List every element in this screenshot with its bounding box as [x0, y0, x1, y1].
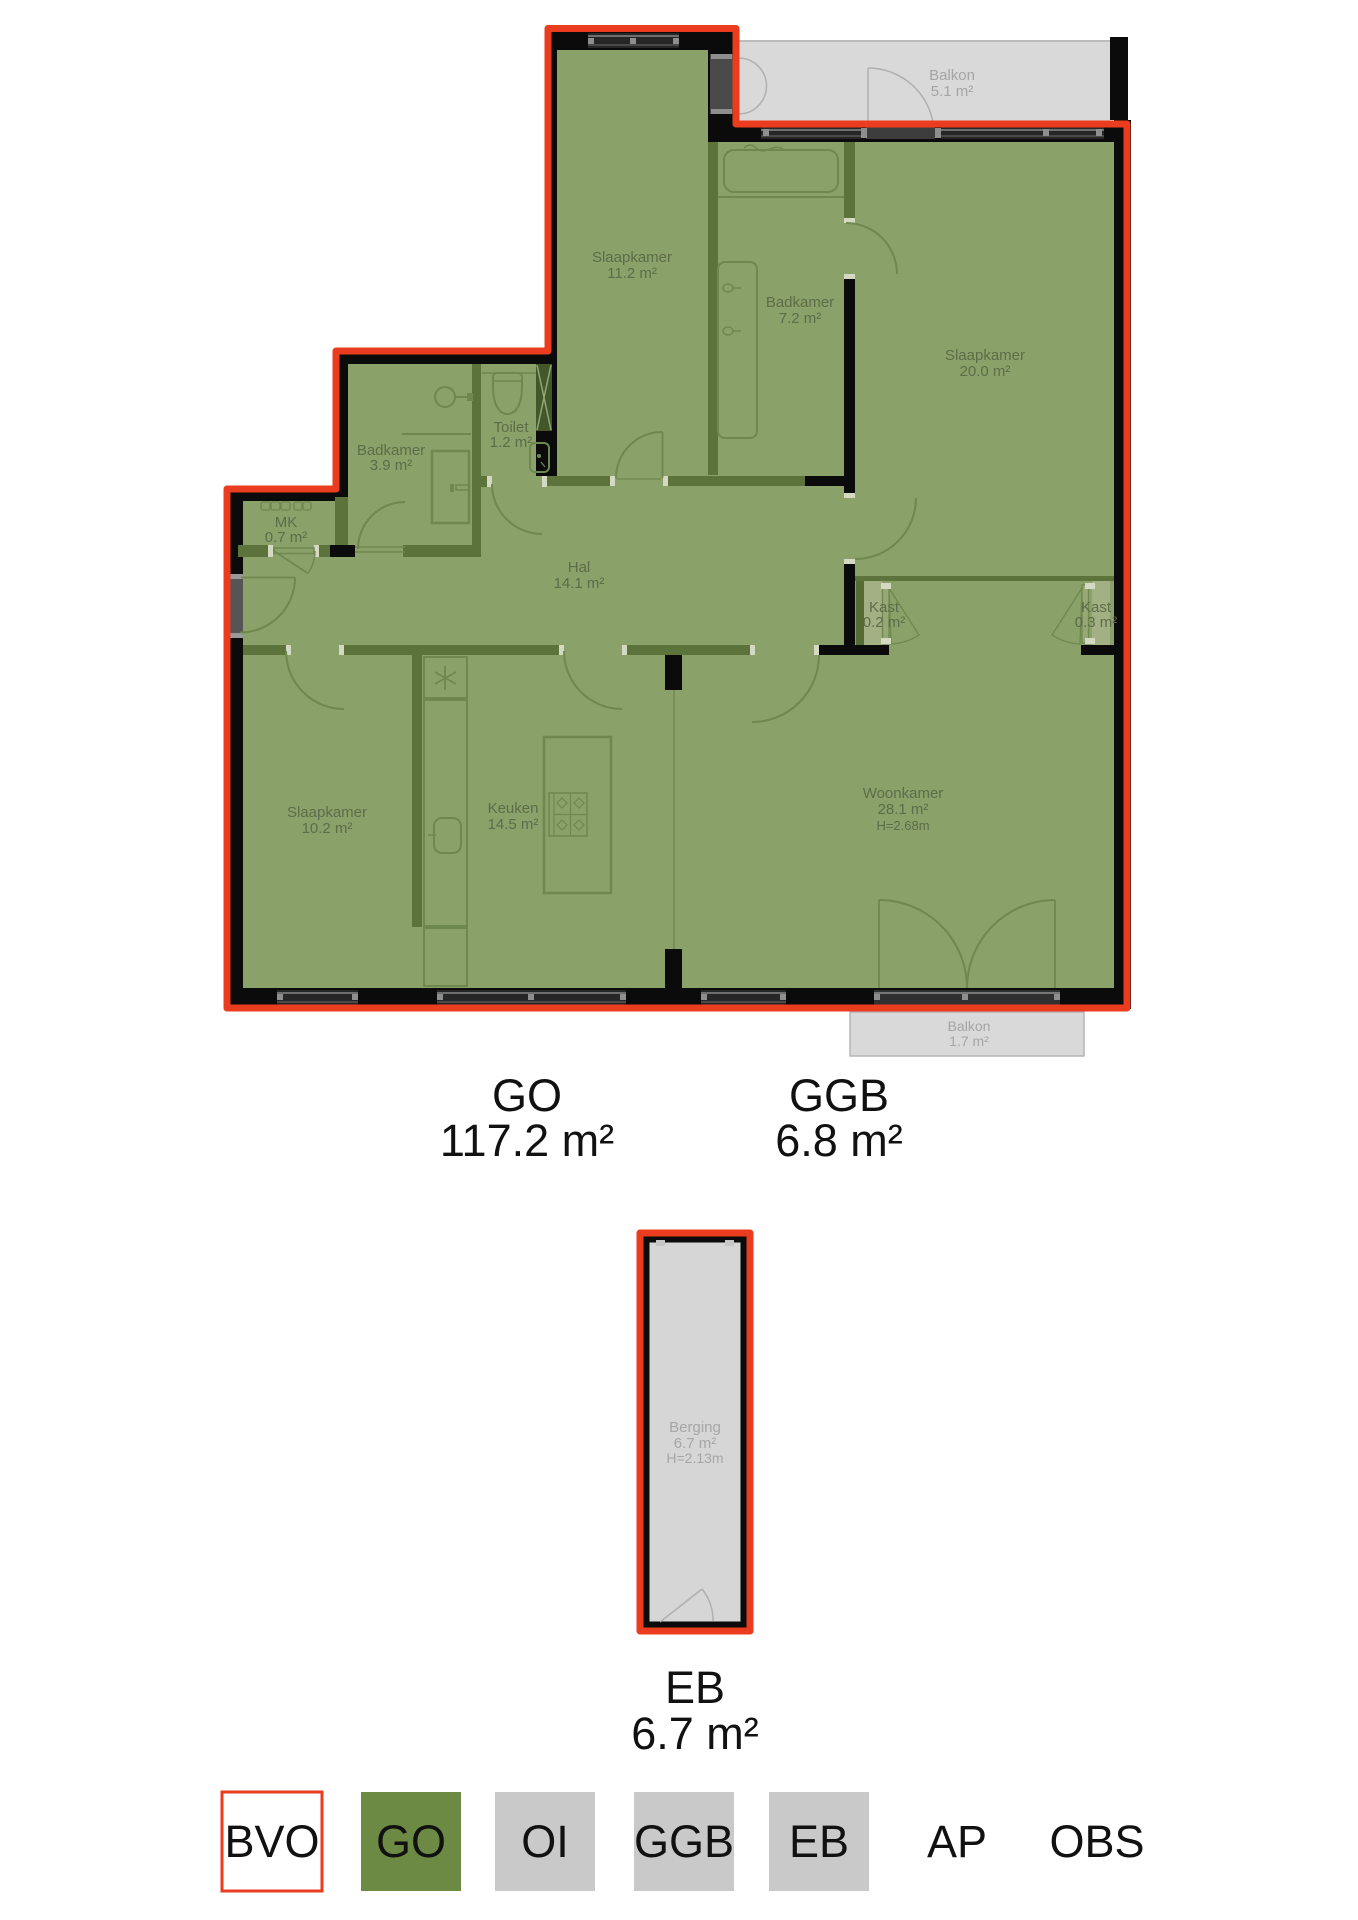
svg-text:GO: GO — [492, 1070, 562, 1121]
svg-text:0.7 m²: 0.7 m² — [265, 529, 308, 546]
svg-text:1.7 m²: 1.7 m² — [949, 1033, 989, 1049]
svg-text:10.2 m²: 10.2 m² — [302, 820, 353, 837]
svg-text:28.1 m²: 28.1 m² — [878, 801, 929, 818]
svg-text:11.2 m²: 11.2 m² — [607, 265, 657, 282]
svg-text:OBS: OBS — [1049, 1816, 1144, 1867]
svg-text:Hal: Hal — [568, 559, 591, 576]
svg-text:EB: EB — [789, 1816, 849, 1867]
svg-text:Woonkamer: Woonkamer — [863, 785, 944, 802]
svg-text:6.7 m²: 6.7 m² — [631, 1708, 759, 1759]
svg-text:AP: AP — [927, 1816, 987, 1867]
svg-text:Balkon: Balkon — [929, 67, 975, 84]
svg-text:5.1 m²: 5.1 m² — [931, 83, 974, 100]
svg-text:7.2 m²: 7.2 m² — [779, 310, 822, 327]
svg-text:20.0 m²: 20.0 m² — [960, 363, 1011, 380]
svg-text:H=2.13m: H=2.13m — [666, 1450, 723, 1466]
svg-text:Badkamer: Badkamer — [766, 294, 834, 311]
svg-text:0.3 m²: 0.3 m² — [1075, 614, 1118, 631]
svg-text:Berging: Berging — [669, 1419, 721, 1436]
svg-text:GO: GO — [376, 1816, 446, 1867]
svg-text:EB: EB — [665, 1662, 725, 1713]
svg-text:OI: OI — [521, 1816, 569, 1867]
svg-text:1.2 m²: 1.2 m² — [490, 434, 533, 451]
svg-text:0.2 m²: 0.2 m² — [863, 614, 906, 631]
svg-text:BVO: BVO — [224, 1816, 319, 1867]
svg-text:GGB: GGB — [634, 1816, 734, 1867]
svg-text:Slaapkamer: Slaapkamer — [945, 347, 1025, 364]
svg-text:6.8 m²: 6.8 m² — [775, 1115, 903, 1166]
svg-text:Slaapkamer: Slaapkamer — [287, 804, 367, 821]
svg-text:Keuken: Keuken — [488, 800, 539, 817]
svg-text:14.1 m²: 14.1 m² — [554, 575, 605, 592]
svg-text:GGB: GGB — [789, 1070, 889, 1121]
svg-text:Balkon: Balkon — [948, 1018, 991, 1034]
svg-text:117.2 m²: 117.2 m² — [440, 1115, 614, 1166]
svg-text:H=2.68m: H=2.68m — [876, 818, 929, 833]
svg-text:Slaapkamer: Slaapkamer — [592, 249, 672, 266]
svg-text:3.9 m²: 3.9 m² — [370, 457, 413, 474]
svg-text:14.5 m²: 14.5 m² — [488, 816, 539, 833]
